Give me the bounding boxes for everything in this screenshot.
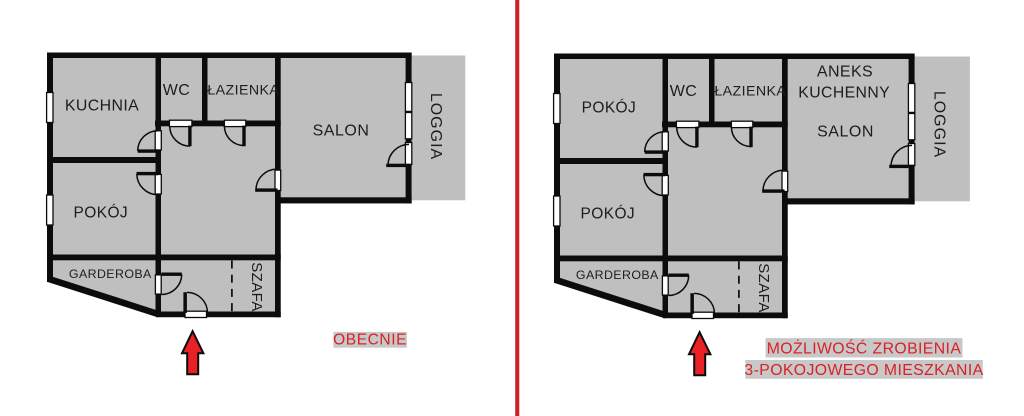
svg-text:MOŻLIWOŚĆ ZROBIENIA: MOŻLIWOŚĆ ZROBIENIA (767, 339, 962, 358)
svg-text:OBECNIE: OBECNIE (333, 332, 407, 349)
svg-text:POKÓJ: POKÓJ (74, 205, 129, 222)
svg-text:GARDEROBA: GARDEROBA (576, 268, 659, 282)
svg-text:POKÓJ: POKÓJ (581, 206, 636, 223)
svg-text:WC: WC (670, 83, 697, 100)
svg-text:ŁAZIENKA: ŁAZIENKA (714, 84, 786, 100)
svg-text:SZAFA: SZAFA (248, 262, 265, 312)
svg-text:POKÓJ: POKÓJ (582, 100, 637, 117)
svg-text:ANEKS: ANEKS (817, 63, 873, 80)
svg-text:SALON: SALON (313, 123, 370, 140)
svg-text:ŁAZIENKA: ŁAZIENKA (207, 83, 279, 99)
svg-text:GARDEROBA: GARDEROBA (69, 267, 152, 281)
svg-text:LOGGIA: LOGGIA (931, 91, 948, 158)
svg-text:KUCHNIA: KUCHNIA (65, 98, 139, 115)
svg-text:KUCHENNY: KUCHENNY (798, 85, 890, 102)
svg-text:3-POKOJOWEGO MIESZKANIA: 3-POKOJOWEGO MIESZKANIA (744, 362, 983, 379)
svg-text:WC: WC (163, 82, 190, 99)
svg-text:SALON: SALON (817, 124, 874, 141)
svg-text:SZAFA: SZAFA (755, 263, 772, 313)
svg-text:LOGGIA: LOGGIA (427, 93, 444, 160)
